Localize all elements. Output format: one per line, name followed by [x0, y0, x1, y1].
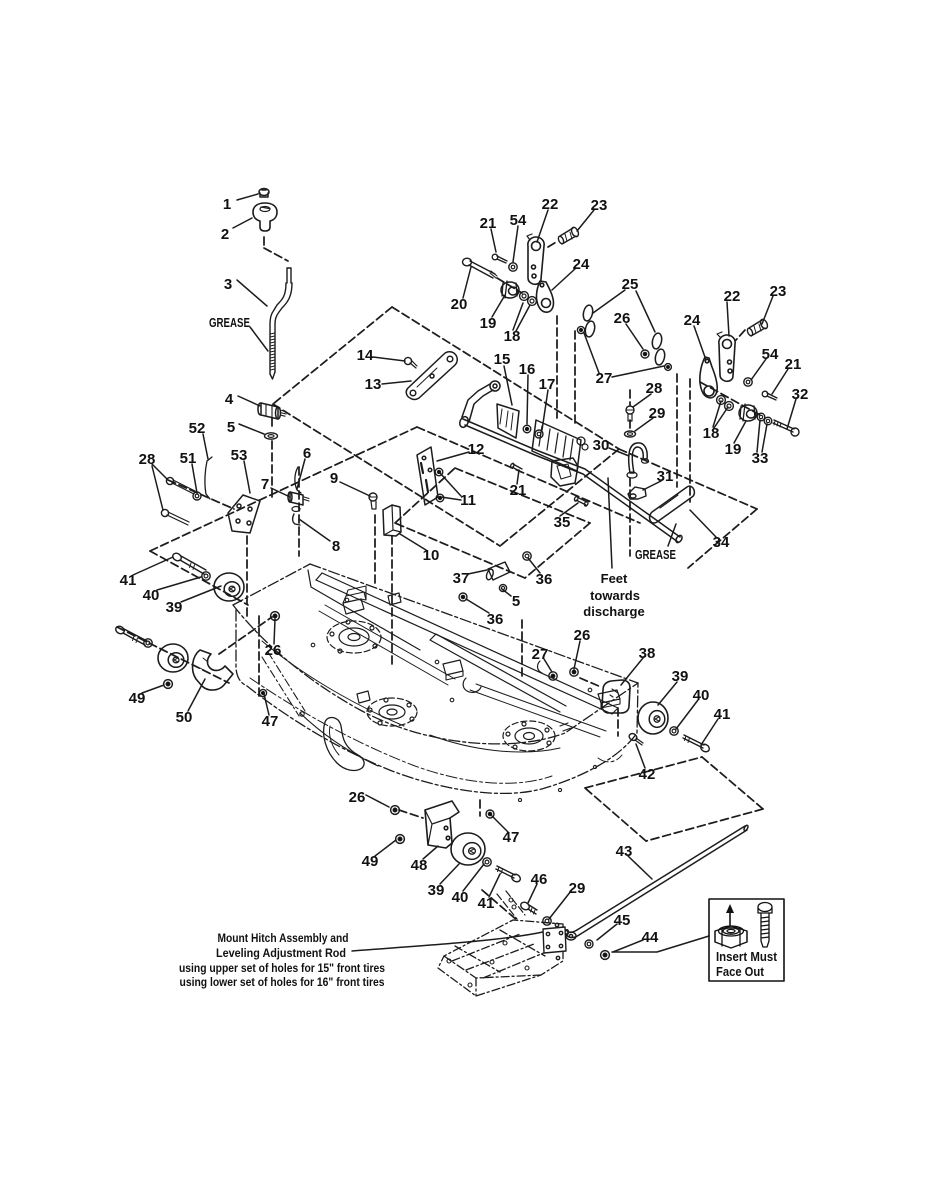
svg-text:9: 9	[330, 470, 338, 487]
svg-text:21: 21	[785, 356, 802, 373]
svg-text:34: 34	[713, 534, 730, 551]
svg-text:54: 54	[762, 346, 779, 363]
svg-text:40: 40	[143, 587, 160, 604]
svg-text:32: 32	[792, 386, 809, 403]
svg-text:51: 51	[180, 450, 197, 467]
svg-text:using upper set of holes for 1: using upper set of holes for 15" front t…	[179, 961, 385, 975]
svg-text:Mount Hitch Assembly and: Mount Hitch Assembly and	[218, 931, 349, 945]
svg-text:50: 50	[176, 709, 193, 726]
svg-text:41: 41	[478, 895, 495, 912]
svg-text:47: 47	[503, 829, 520, 846]
svg-text:39: 39	[428, 882, 445, 899]
svg-text:Leveling Adjustment Rod: Leveling Adjustment Rod	[216, 946, 346, 960]
svg-text:39: 39	[672, 668, 689, 685]
svg-text:20: 20	[451, 296, 468, 313]
svg-text:6: 6	[303, 445, 311, 462]
svg-text:49: 49	[362, 853, 379, 870]
svg-text:41: 41	[714, 706, 731, 723]
svg-text:21: 21	[480, 215, 497, 232]
svg-text:21: 21	[510, 482, 527, 499]
svg-text:8: 8	[332, 538, 340, 555]
svg-text:5: 5	[512, 593, 520, 610]
svg-text:37: 37	[453, 570, 470, 587]
svg-text:15: 15	[494, 351, 511, 368]
svg-text:47: 47	[262, 713, 279, 730]
svg-text:43: 43	[616, 843, 633, 860]
svg-text:11: 11	[460, 492, 476, 509]
svg-text:26: 26	[265, 642, 282, 659]
svg-text:40: 40	[452, 889, 469, 906]
svg-text:23: 23	[770, 283, 787, 300]
svg-text:23: 23	[591, 197, 608, 214]
svg-text:22: 22	[724, 288, 741, 305]
svg-text:46: 46	[531, 871, 548, 888]
svg-text:2: 2	[221, 226, 229, 243]
svg-text:14: 14	[357, 347, 374, 364]
svg-text:1: 1	[223, 196, 231, 213]
svg-text:24: 24	[573, 256, 590, 273]
svg-text:10: 10	[423, 547, 440, 564]
svg-text:54: 54	[510, 212, 527, 229]
svg-text:26: 26	[574, 627, 591, 644]
svg-text:using lower set of holes for 1: using lower set of holes for 16" front t…	[180, 975, 385, 989]
svg-text:35: 35	[554, 514, 571, 531]
svg-text:Feet: Feet	[601, 571, 628, 586]
svg-text:22: 22	[542, 196, 559, 213]
svg-text:42: 42	[639, 766, 656, 783]
svg-text:36: 36	[487, 611, 504, 628]
svg-text:3: 3	[224, 276, 232, 293]
svg-text:36: 36	[536, 571, 553, 588]
svg-text:7: 7	[261, 476, 269, 493]
svg-text:13: 13	[365, 376, 382, 393]
svg-text:38: 38	[639, 645, 656, 662]
svg-text:28: 28	[139, 451, 156, 468]
svg-text:29: 29	[569, 880, 586, 897]
svg-text:33: 33	[752, 450, 769, 467]
svg-text:27: 27	[532, 646, 549, 663]
svg-text:18: 18	[504, 328, 521, 345]
svg-text:30: 30	[593, 437, 610, 454]
svg-text:19: 19	[480, 315, 497, 332]
svg-text:27: 27	[596, 370, 613, 387]
svg-text:16: 16	[519, 361, 536, 378]
svg-text:39: 39	[166, 599, 183, 616]
svg-text:discharge: discharge	[583, 604, 644, 619]
svg-text:52: 52	[189, 420, 206, 437]
svg-text:48: 48	[411, 857, 428, 874]
svg-text:5: 5	[227, 419, 235, 436]
svg-text:18: 18	[703, 425, 720, 442]
svg-text:45: 45	[614, 912, 631, 929]
svg-text:towards: towards	[590, 588, 640, 603]
svg-text:Face Out: Face Out	[716, 964, 765, 979]
svg-text:GREASE: GREASE	[209, 315, 250, 330]
svg-text:28: 28	[646, 380, 663, 397]
svg-text:GREASE: GREASE	[635, 547, 676, 562]
svg-text:53: 53	[231, 447, 248, 464]
svg-text:49: 49	[129, 690, 146, 707]
svg-text:19: 19	[725, 441, 742, 458]
svg-text:24: 24	[684, 312, 701, 329]
svg-text:12: 12	[468, 441, 485, 458]
svg-text:44: 44	[642, 929, 659, 946]
svg-text:Insert Must: Insert Must	[716, 949, 778, 964]
svg-text:29: 29	[649, 405, 666, 422]
svg-text:17: 17	[539, 376, 556, 393]
svg-text:31: 31	[657, 468, 674, 485]
svg-text:26: 26	[614, 310, 631, 327]
svg-text:40: 40	[693, 687, 710, 704]
svg-text:26: 26	[349, 789, 366, 806]
svg-text:25: 25	[622, 276, 639, 293]
svg-text:4: 4	[225, 391, 234, 408]
svg-text:41: 41	[120, 572, 137, 589]
